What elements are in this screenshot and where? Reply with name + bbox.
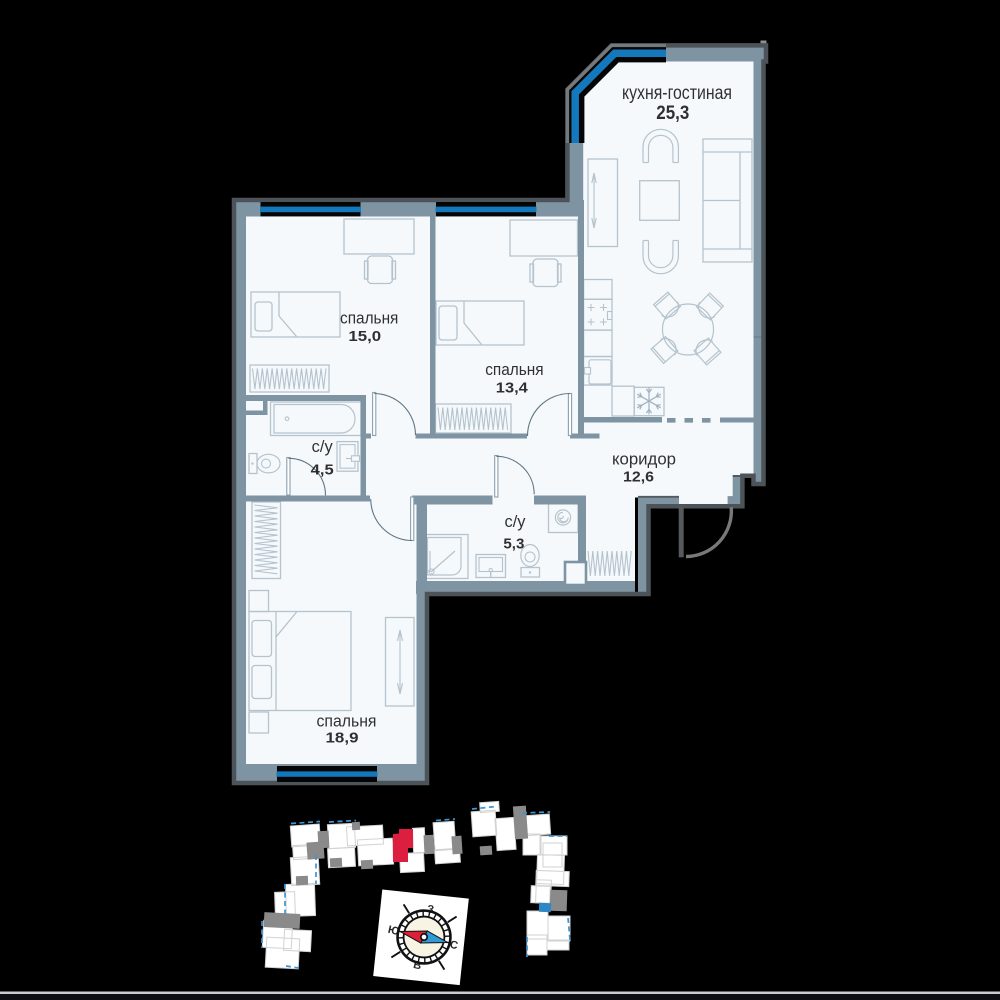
svg-text:18,9: 18,9 — [326, 730, 359, 747]
svg-text:спальня: спальня — [317, 713, 377, 731]
svg-text:4,5: 4,5 — [311, 462, 334, 479]
svg-text:кухня-гостиная: кухня-гостиная — [622, 83, 732, 104]
svg-text:с/у: с/у — [505, 513, 527, 531]
svg-text:спальня: спальня — [485, 361, 543, 379]
svg-text:5,3: 5,3 — [503, 536, 524, 553]
svg-text:13,4: 13,4 — [496, 380, 529, 397]
svg-text:15,0: 15,0 — [348, 328, 381, 345]
svg-text:спальня: спальня — [340, 310, 398, 328]
svg-text:12,6: 12,6 — [623, 469, 654, 486]
svg-text:с/у: с/у — [312, 438, 334, 456]
svg-text:25,3: 25,3 — [656, 102, 689, 124]
svg-text:коридор: коридор — [612, 451, 676, 469]
